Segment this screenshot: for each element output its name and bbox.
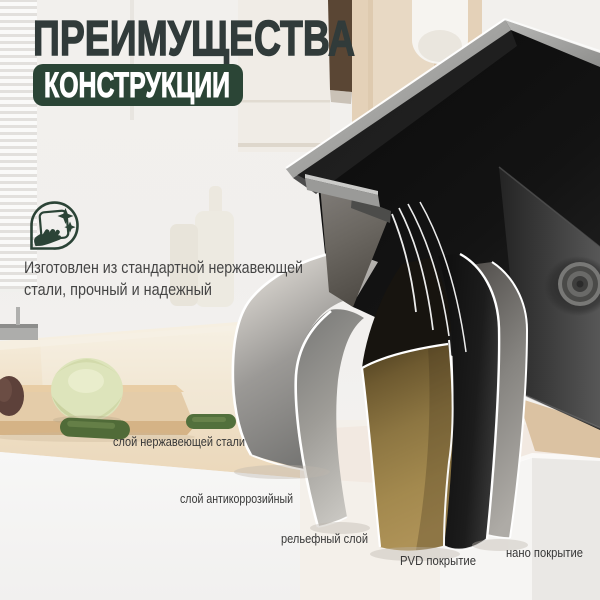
svg-text:Изготовлен из стандартной нерж: Изготовлен из стандартной нержавеющей	[24, 259, 303, 277]
svg-text:ПРЕИМУЩЕСТВА: ПРЕИМУЩЕСТВА	[33, 12, 355, 66]
svg-text:рельефный слой: рельефный слой	[281, 532, 368, 546]
svg-text:слой антикоррозийный: слой антикоррозийный	[180, 492, 293, 506]
svg-text:КОНСТРУКЦИИ: КОНСТРУКЦИИ	[44, 66, 230, 105]
svg-text:слой нержавеющей стали: слой нержавеющей стали	[113, 435, 245, 449]
svg-text:стали, прочный и надежный: стали, прочный и надежный	[24, 281, 212, 299]
svg-text:PVD покрытие: PVD покрытие	[400, 554, 476, 568]
svg-text:нано покрытие: нано покрытие	[506, 546, 583, 560]
